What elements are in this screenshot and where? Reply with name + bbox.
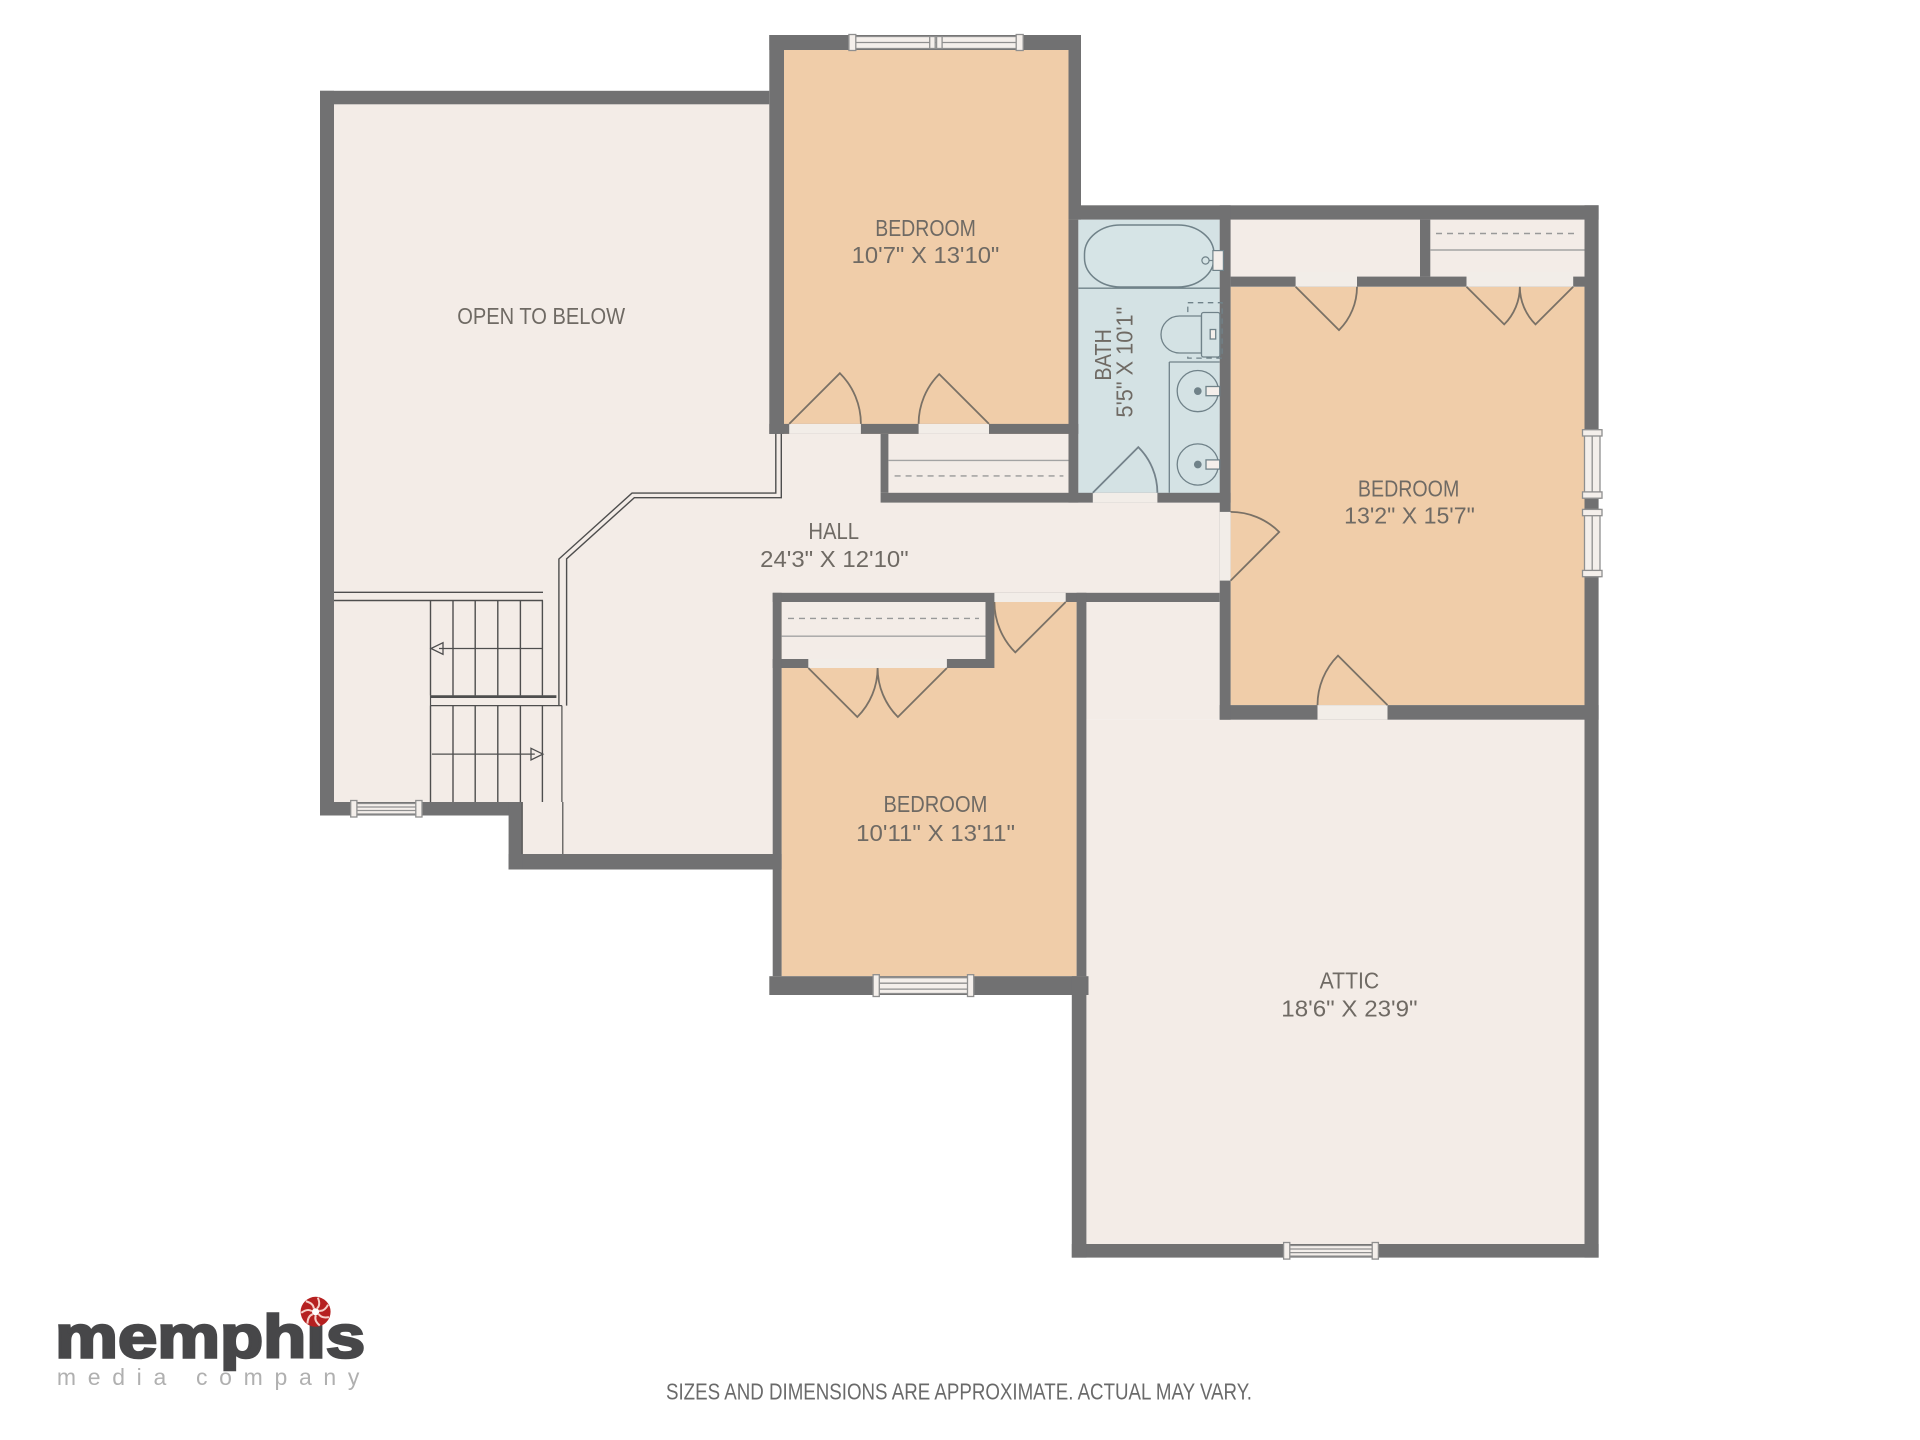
svg-text:10'7" X 13'10": 10'7" X 13'10" <box>852 242 1000 268</box>
svg-text:5'5" X 10'1": 5'5" X 10'1" <box>1111 307 1137 418</box>
svg-text:BEDROOM: BEDROOM <box>875 215 976 241</box>
svg-text:BEDROOM: BEDROOM <box>884 791 988 817</box>
svg-text:HALL: HALL <box>808 518 859 544</box>
svg-text:OPEN TO BELOW: OPEN TO BELOW <box>457 303 625 329</box>
svg-text:18'6" X 23'9": 18'6" X 23'9" <box>1281 996 1417 1022</box>
svg-text:ATTIC: ATTIC <box>1320 967 1380 993</box>
svg-text:10'11" X 13'11": 10'11" X 13'11" <box>856 820 1015 846</box>
svg-text:BEDROOM: BEDROOM <box>1358 476 1459 502</box>
svg-text:SIZES AND DIMENSIONS ARE APPRO: SIZES AND DIMENSIONS ARE APPROXIMATE. AC… <box>666 1379 1252 1405</box>
svg-text:24'3" X 12'10": 24'3" X 12'10" <box>760 546 909 572</box>
svg-text:13'2" X 15'7": 13'2" X 15'7" <box>1344 502 1475 528</box>
